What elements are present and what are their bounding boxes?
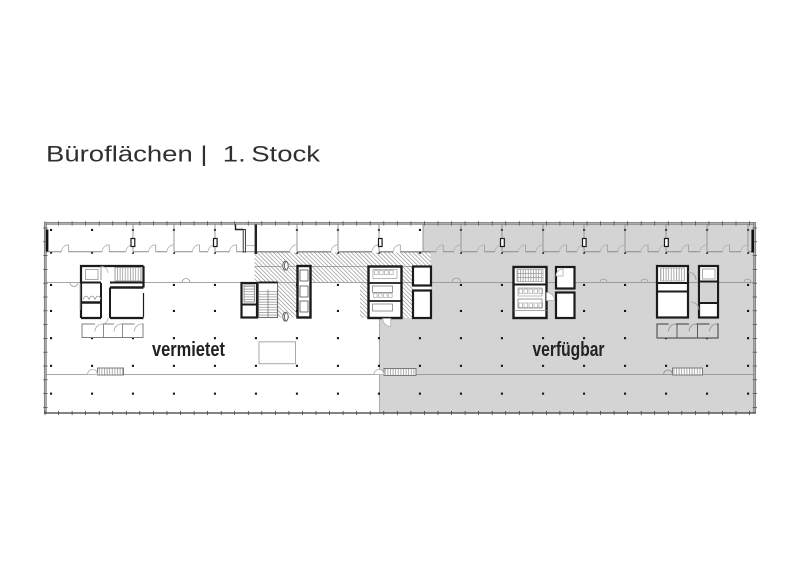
svg-text:vermietet: vermietet	[152, 339, 225, 361]
svg-text:verfügbar: verfügbar	[533, 339, 605, 361]
svg-text:Büroflächen | 1. Stock: Büroflächen | 1. Stock	[46, 142, 321, 167]
